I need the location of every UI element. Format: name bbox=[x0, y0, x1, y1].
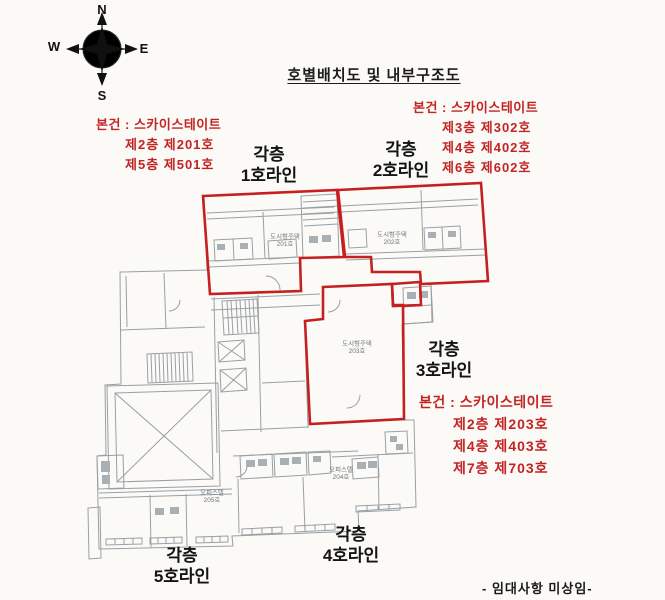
annotation-line3: 본건 : 스카이스테이트 제2층 제203호 제4층 제403호 제7층 제70… bbox=[419, 391, 553, 479]
label-line2: 각층 2호라인 bbox=[360, 139, 442, 181]
compass-north-label: N bbox=[97, 2, 106, 17]
label-line3-bottom: 3호라인 bbox=[402, 360, 486, 381]
label-line3: 각층 3호라인 bbox=[402, 339, 486, 381]
label-line2-bottom: 2호라인 bbox=[360, 160, 442, 181]
annotation-line2-header: 본건 : 스카이스테이트 bbox=[413, 98, 538, 118]
footer-note: - 임대사항 미상임- bbox=[482, 578, 593, 597]
label-line4-bottom: 4호라인 bbox=[309, 545, 393, 566]
label-line1-top: 각층 bbox=[228, 144, 310, 165]
compass-east-label: E bbox=[140, 41, 149, 56]
unit-label-202: 도시형주택 202호 bbox=[372, 232, 412, 246]
annotation-line1-row: 제5층 제501호 bbox=[125, 155, 221, 175]
label-line1-bottom: 1호라인 bbox=[228, 165, 310, 186]
label-line2-top: 각층 bbox=[360, 139, 442, 160]
annotation-line1-header: 본건 : 스카이스테이트 bbox=[96, 115, 221, 135]
unit-202-type: 도시형주택 bbox=[372, 232, 412, 239]
unit-201-type: 도시형주택 bbox=[265, 234, 305, 241]
unit-203-number: 203호 bbox=[337, 348, 377, 355]
annotation-line1: 본건 : 스카이스테이트 제2층 제201호 제5층 제501호 bbox=[96, 115, 221, 175]
unit-label-203: 도시형주택 203호 bbox=[337, 341, 377, 355]
unit-label-204: 오피스텔 204호 bbox=[321, 467, 361, 481]
unit-205-number: 205호 bbox=[192, 497, 232, 504]
label-line1: 각층 1호라인 bbox=[228, 144, 310, 186]
unit-label-205: 오피스텔 205호 bbox=[192, 490, 232, 504]
annotation-line2-row: 제6층 제602호 bbox=[442, 158, 538, 178]
unit-203-type: 도시형주택 bbox=[337, 341, 377, 348]
label-line4: 각층 4호라인 bbox=[309, 524, 393, 566]
label-line4-top: 각층 bbox=[309, 524, 393, 545]
unit-201-number: 201호 bbox=[265, 241, 305, 248]
unit-label-201: 도시형주택 201호 bbox=[265, 234, 305, 248]
label-line3-top: 각층 bbox=[402, 339, 486, 360]
unit-205-type: 오피스텔 bbox=[192, 490, 232, 497]
unit-204-number: 204호 bbox=[321, 474, 361, 481]
compass-west-label: W bbox=[48, 39, 61, 54]
compass-rose-icon: N E S W bbox=[48, 2, 149, 103]
unit-202-number: 202호 bbox=[372, 239, 412, 246]
label-line5-bottom: 5호라인 bbox=[140, 566, 224, 587]
label-line5-top: 각층 bbox=[140, 545, 224, 566]
page-title: 호별배치도 및 내부구조도 bbox=[274, 64, 474, 85]
annotation-line3-header: 본건 : 스카이스테이트 bbox=[419, 391, 553, 413]
annotation-line3-row: 제2층 제203호 bbox=[453, 413, 553, 435]
label-line5: 각층 5호라인 bbox=[140, 545, 224, 587]
annotation-line2-row: 제4층 제402호 bbox=[442, 138, 538, 158]
annotation-line2-row: 제3층 제302호 bbox=[442, 118, 538, 138]
annotation-line1-row: 제2층 제201호 bbox=[125, 135, 221, 155]
annotation-line3-row: 제4층 제403호 bbox=[453, 435, 553, 457]
red-outline-line2-unit bbox=[338, 183, 488, 284]
appraisal-floorplan-page: N E S W bbox=[0, 0, 665, 600]
floorplan-canvas: N E S W bbox=[0, 0, 665, 600]
unit-204-type: 오피스텔 bbox=[321, 467, 361, 474]
red-outline-connector bbox=[392, 282, 421, 306]
annotation-line3-row: 제7층 제703호 bbox=[453, 457, 553, 479]
compass-south-label: S bbox=[98, 88, 107, 103]
